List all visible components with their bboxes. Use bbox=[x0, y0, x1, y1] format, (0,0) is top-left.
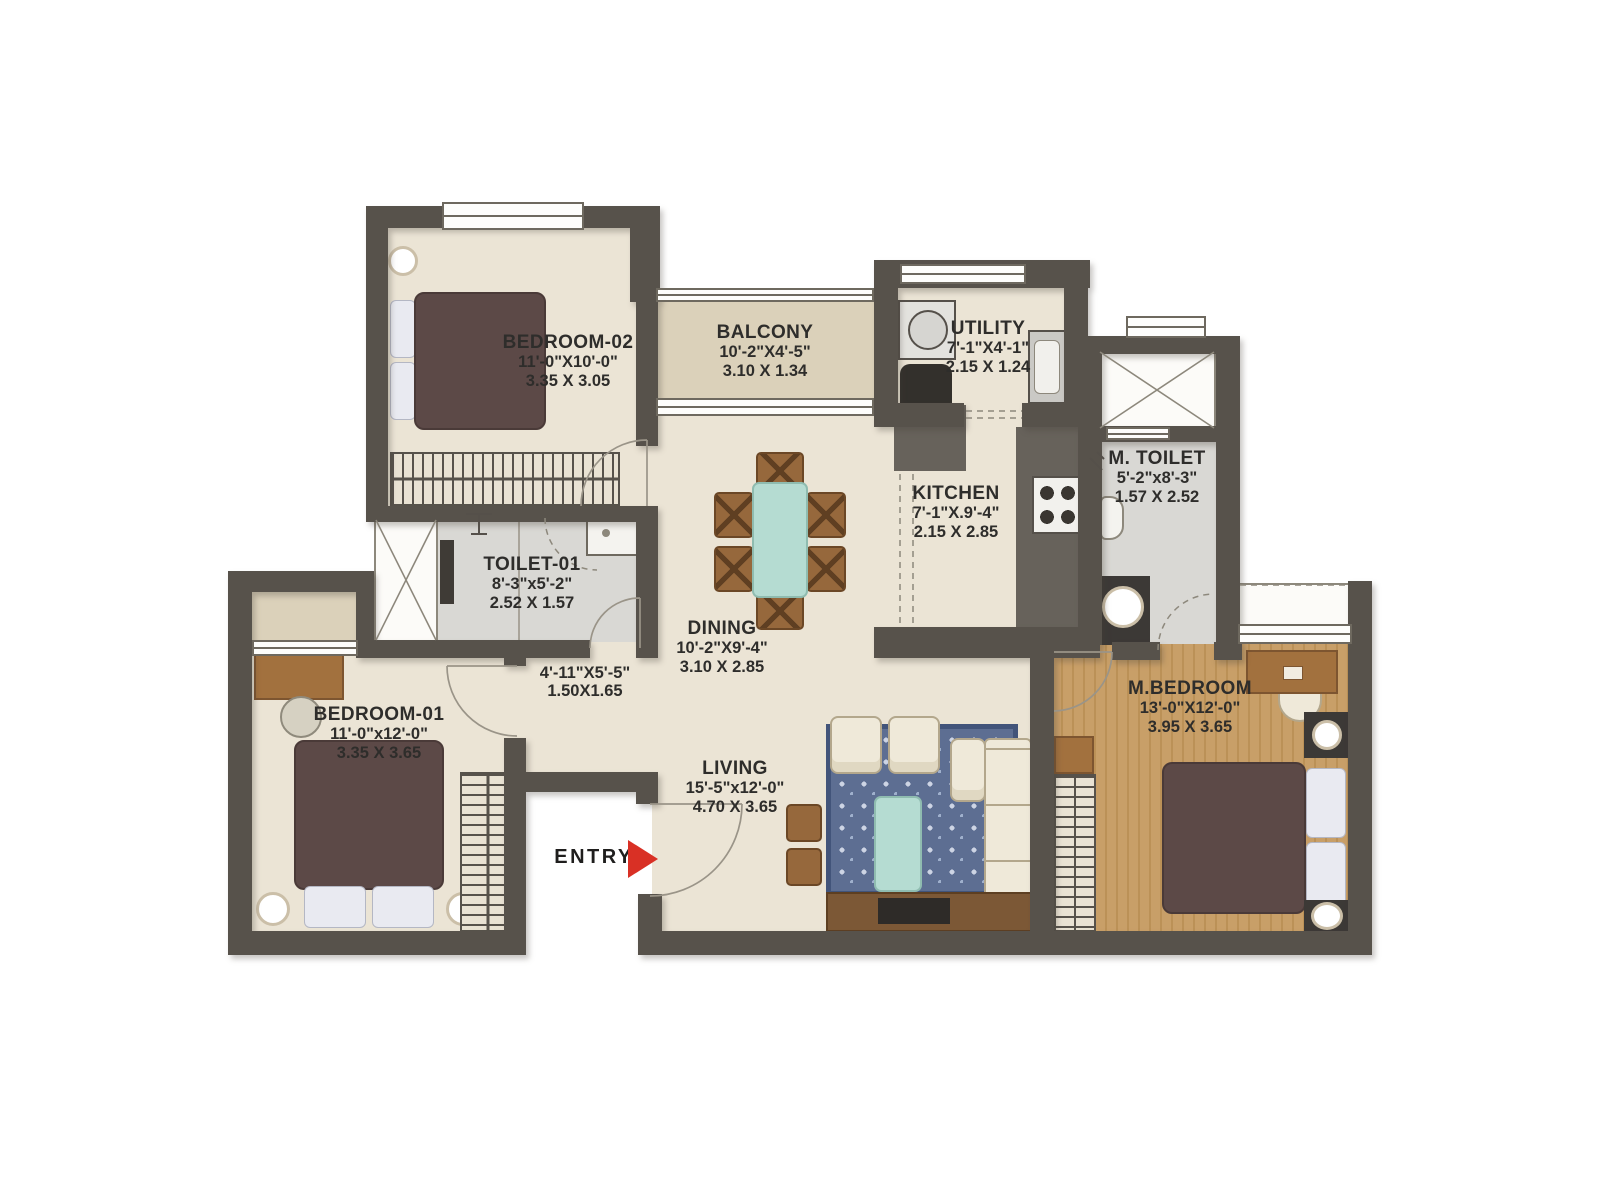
room-dim-m: 3.95 X 3.65 bbox=[1128, 718, 1252, 736]
room-dim-m: 2.15 X 1.24 bbox=[946, 358, 1030, 376]
room-dim-m: 2.52 X 1.57 bbox=[483, 594, 580, 612]
room-dim-ft: 11'-0"X10'-0" bbox=[503, 353, 634, 371]
room-label-mbedroom: M.BEDROOM 13'-0"X12'-0" 3.95 X 3.65 bbox=[1128, 678, 1252, 736]
room-dim-ft: 8'-3"x5'-2" bbox=[483, 575, 580, 593]
room-dim-ft: 10'-2"X4'-5" bbox=[717, 343, 814, 361]
room-label-toilet01: TOILET-01 8'-3"x5'-2" 2.52 X 1.57 bbox=[483, 554, 580, 612]
entry-label: ENTRY bbox=[554, 846, 634, 869]
room-label-bedroom01: BEDROOM-01 11'-0"x12'-0" 3.35 X 3.65 bbox=[314, 704, 445, 762]
room-name: BALCONY bbox=[717, 322, 814, 343]
room-dim-m: 1.57 X 2.52 bbox=[1108, 488, 1205, 506]
room-dim-m: 2.15 X 2.85 bbox=[912, 523, 999, 541]
room-name: BEDROOM-01 bbox=[314, 704, 445, 725]
room-dim-ft: 13'-0"X12'-0" bbox=[1128, 699, 1252, 717]
room-name: M. TOILET bbox=[1108, 448, 1205, 469]
room-label-living: LIVING 15'-5"x12'-0" 4.70 X 3.65 bbox=[686, 758, 785, 816]
room-dim-ft: 10'-2"X9'-4" bbox=[676, 639, 767, 657]
labels-layer: BEDROOM-02 11'-0"X10'-0" 3.35 X 3.05 BAL… bbox=[0, 0, 1600, 1200]
room-label-utility: UTILITY 7'-1"X4'-1" 2.15 X 1.24 bbox=[946, 318, 1030, 376]
room-dim-m: 3.35 X 3.05 bbox=[503, 372, 634, 390]
room-dim-m: 4.70 X 3.65 bbox=[686, 798, 785, 816]
room-name: M.BEDROOM bbox=[1128, 678, 1252, 699]
floor-plan: BEDROOM-02 11'-0"X10'-0" 3.35 X 3.05 BAL… bbox=[0, 0, 1600, 1200]
room-name: TOILET-01 bbox=[483, 554, 580, 575]
room-dim-ft: 15'-5"x12'-0" bbox=[686, 779, 785, 797]
room-dim-ft: 7'-1"X4'-1" bbox=[946, 339, 1030, 357]
room-label-dining: DINING 10'-2"X9'-4" 3.10 X 2.85 bbox=[676, 618, 767, 676]
room-name: KITCHEN bbox=[912, 483, 999, 504]
room-dim-m: 3.35 X 3.65 bbox=[314, 744, 445, 762]
room-name: LIVING bbox=[686, 758, 785, 779]
room-dim-ft: 11'-0"x12'-0" bbox=[314, 725, 445, 743]
room-dim-ft: 4'-11"X5'-5" bbox=[540, 664, 630, 682]
room-dim-m: 3.10 X 1.34 bbox=[717, 362, 814, 380]
entry-arrow-icon bbox=[628, 840, 658, 878]
room-label-balcony: BALCONY 10'-2"X4'-5" 3.10 X 1.34 bbox=[717, 322, 814, 380]
room-dim-ft: 5'-2"x8'-3" bbox=[1108, 469, 1205, 487]
room-label-passage: 4'-11"X5'-5" 1.50X1.65 bbox=[540, 664, 630, 701]
room-dim-m: 3.10 X 2.85 bbox=[676, 658, 767, 676]
room-label-kitchen: KITCHEN 7'-1"X.9'-4" 2.15 X 2.85 bbox=[912, 483, 999, 541]
room-dim-m: 1.50X1.65 bbox=[540, 682, 630, 700]
room-name: DINING bbox=[676, 618, 767, 639]
room-dim-ft: 7'-1"X.9'-4" bbox=[912, 504, 999, 522]
room-label-bedroom02: BEDROOM-02 11'-0"X10'-0" 3.35 X 3.05 bbox=[503, 332, 634, 390]
room-label-mtoilet: M. TOILET 5'-2"x8'-3" 1.57 X 2.52 bbox=[1108, 448, 1205, 506]
room-name: BEDROOM-02 bbox=[503, 332, 634, 353]
room-name: UTILITY bbox=[946, 318, 1030, 339]
